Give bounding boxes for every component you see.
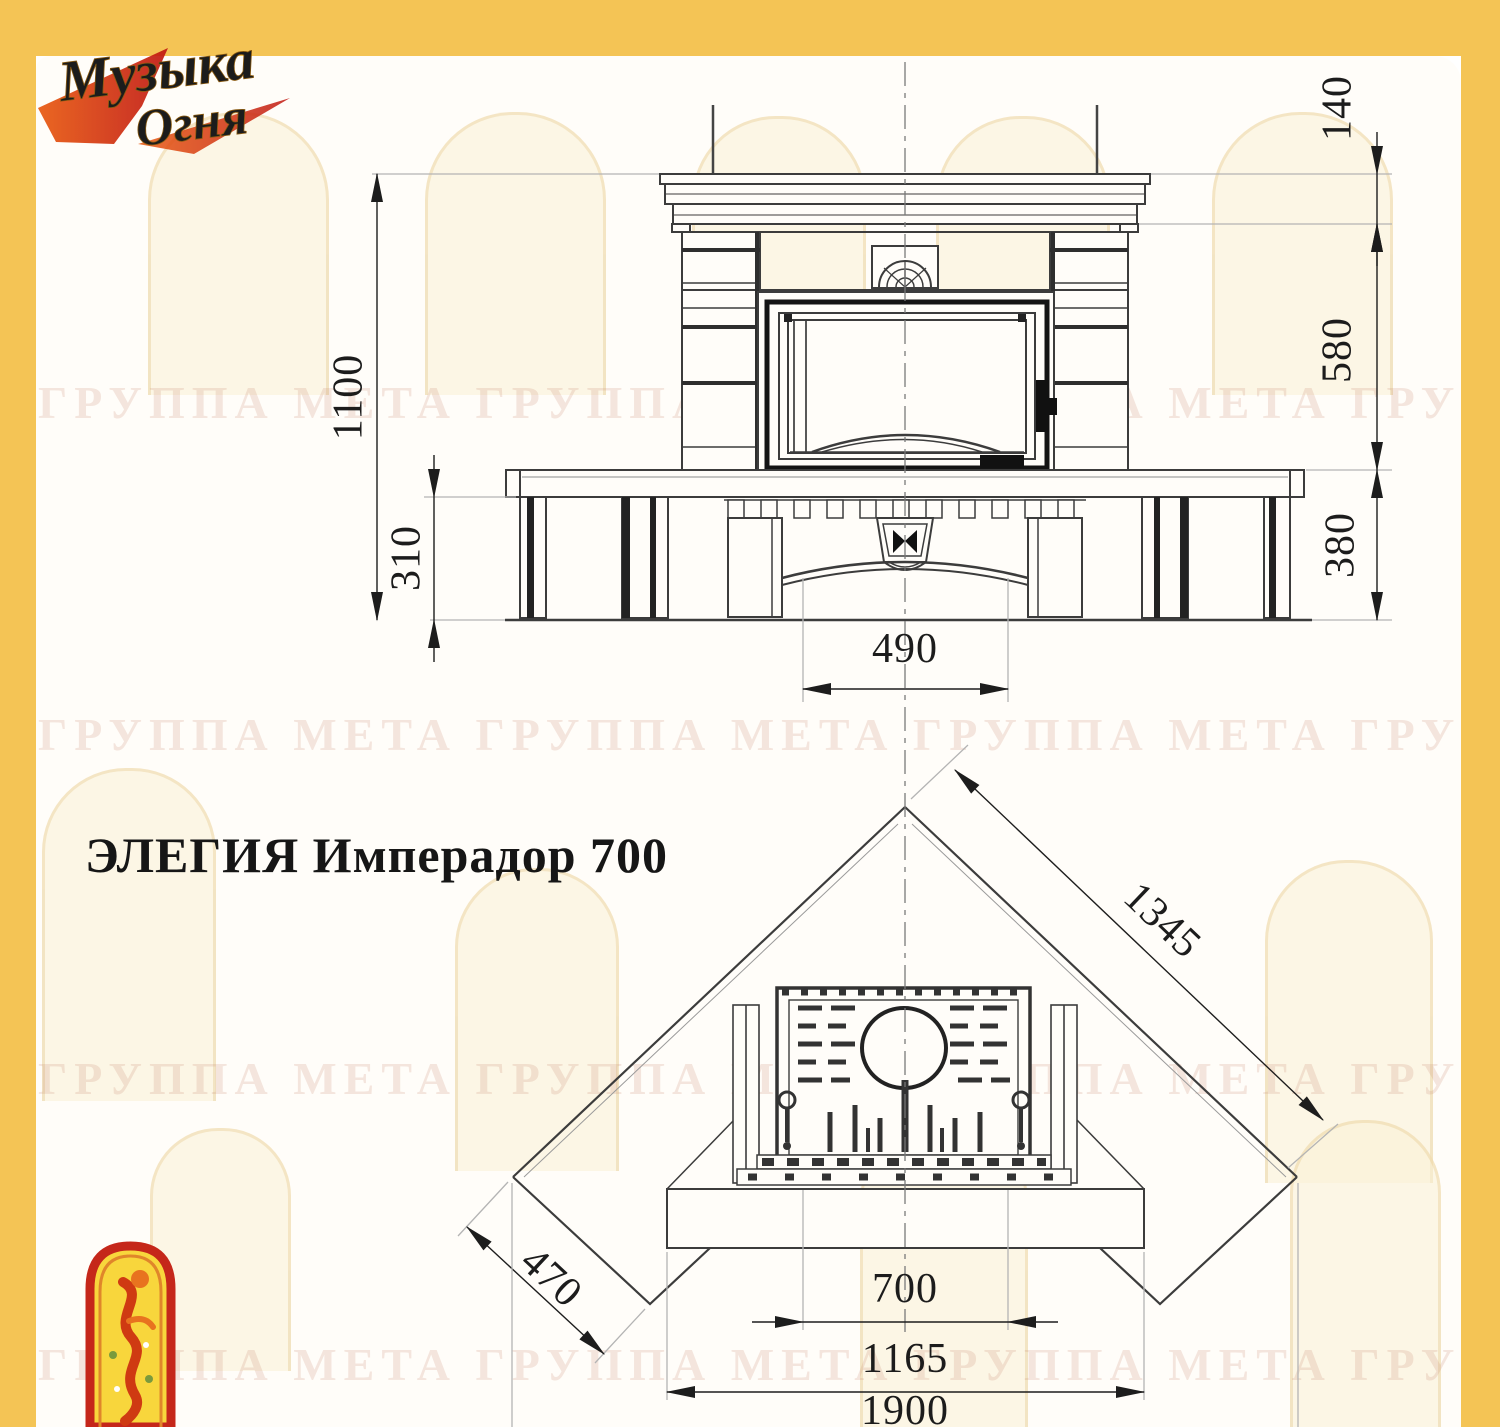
dim-label-380: 380: [1318, 512, 1364, 578]
flue-outlet: [862, 1008, 946, 1088]
fireplace-technical-drawing: 1100 310 140 580 380: [0, 0, 1500, 1427]
dim-label-580: 580: [1315, 317, 1361, 383]
front-view: [372, 105, 1392, 620]
dim-bench-leg-height: 310: [384, 455, 516, 662]
dim-label-700: 700: [872, 1266, 938, 1312]
dim-label-490: 490: [872, 626, 938, 672]
dim-label-140: 140: [1315, 75, 1361, 141]
scanned-fireplace-datasheet: ГРУППА МЕТА ГРУППА МЕТА ГРУППА МЕТА ГРУП…: [0, 0, 1500, 1427]
dim-label-1900: 1900: [861, 1388, 949, 1427]
dentil-row: [728, 500, 1074, 518]
firebox-door: [758, 292, 1057, 470]
flame-dancer-emblem: [83, 1237, 178, 1427]
dim-label-470: 470: [511, 1238, 591, 1317]
ash-lip: [980, 455, 1024, 468]
brand-logo: Музыка Огня: [18, 8, 318, 158]
dim-right-chain: 140 580 380: [1306, 75, 1392, 620]
dim-label-1345: 1345: [1115, 874, 1210, 968]
dim-total-height: 1100: [326, 174, 377, 620]
dim-label-310: 310: [384, 525, 430, 591]
model-title: ЭЛЕГИЯ Имперадор 700: [85, 826, 668, 884]
dim-label-1100: 1100: [326, 354, 372, 440]
firebox-insert-plan: [737, 988, 1071, 1185]
dim-label-1165: 1165: [862, 1336, 948, 1382]
